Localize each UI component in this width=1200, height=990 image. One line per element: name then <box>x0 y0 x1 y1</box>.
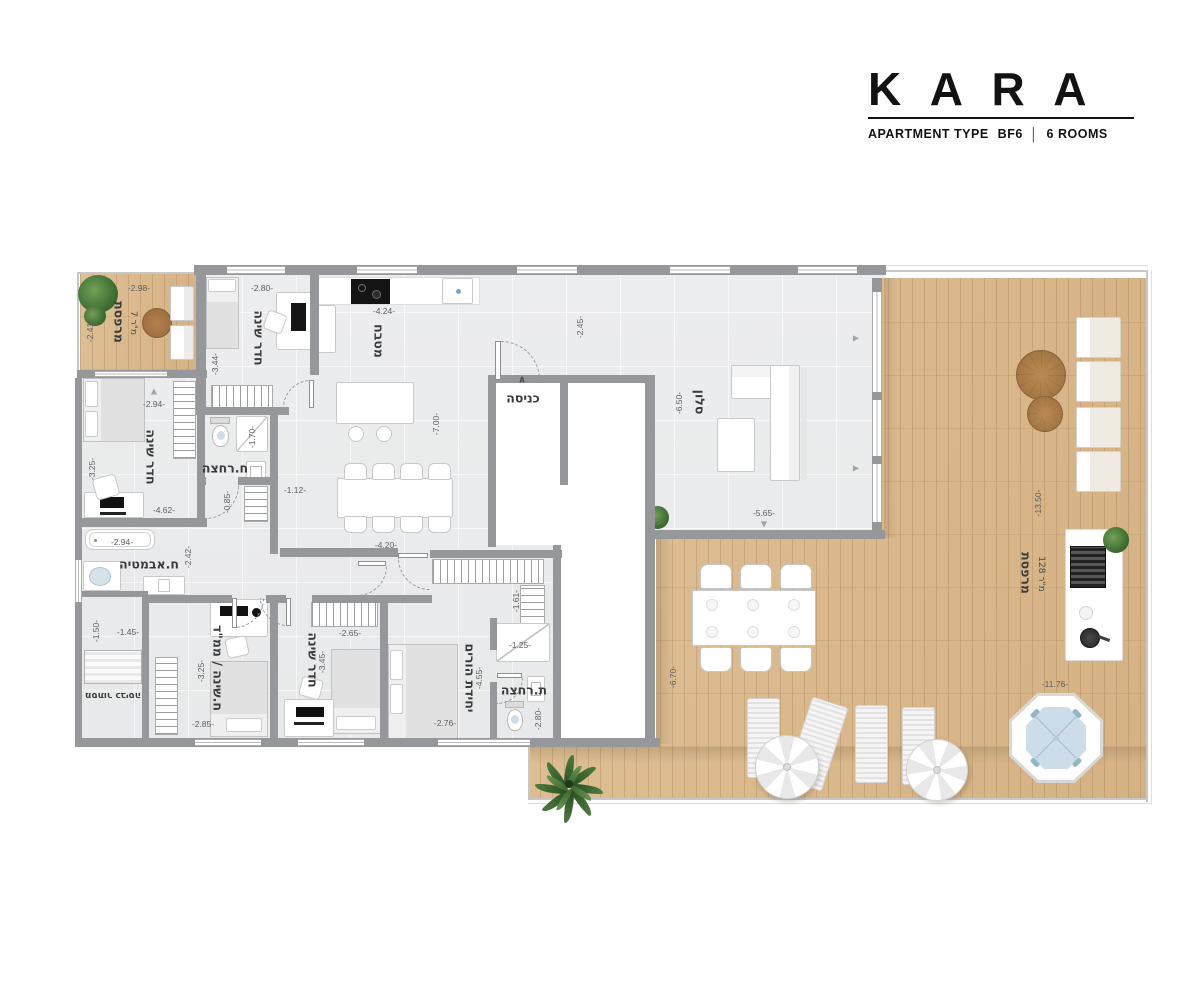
dimension-label: -3.45- <box>317 651 327 673</box>
dimension-label: -1.45- <box>117 627 139 637</box>
dimension-label: -2.41- <box>85 320 95 342</box>
dimension-label: -2.65- <box>339 628 361 638</box>
dimension-label: -2.94- <box>143 399 165 409</box>
dimension-label: -2.42- <box>183 546 193 568</box>
room-label: חדר שינה <box>252 310 267 365</box>
direction-marker-icon: ▶ <box>853 464 859 473</box>
direction-marker-icon: ▲ <box>151 387 157 396</box>
dimension-label: -4.62- <box>153 505 175 515</box>
room-label: 7 מ"ר <box>128 311 138 335</box>
dimension-label: -2.80- <box>533 708 543 730</box>
room-label: מטבח <box>372 324 387 358</box>
dimension-label: -1.12- <box>284 485 306 495</box>
direction-marker-icon: ▶ <box>853 334 859 343</box>
room-label: חדר שינה <box>144 429 159 484</box>
room-label: מרפסת <box>1019 552 1034 594</box>
dimension-label: -6.50- <box>674 392 684 414</box>
dimension-label: -4.20- <box>375 540 397 550</box>
dimension-label: -2.80- <box>251 283 273 293</box>
dimension-label: -3.44- <box>210 353 220 375</box>
dimension-label: -4.24- <box>373 306 395 316</box>
dimension-label: -2.94- <box>111 537 133 547</box>
floor-plan: מרפסת7 מ"רחדר שינהמטבחכניסהסלוןחדר שינהח… <box>0 0 1200 990</box>
room-label: ח.שינה / ממ"ד <box>211 625 226 711</box>
dimension-label: -2.45- <box>575 316 585 338</box>
dimension-label: -1.50- <box>91 620 101 642</box>
dimension-label: -6.70- <box>668 666 678 688</box>
direction-marker-icon: ▼ <box>761 520 767 529</box>
room-label: ח.רחצה <box>202 461 248 476</box>
dimension-label: -3.25- <box>196 660 206 682</box>
dimension-label: -5.65- <box>753 508 775 518</box>
entrance-arrow-icon: ∧ <box>518 375 526 386</box>
dimension-label: -2.85- <box>192 719 214 729</box>
floorplan-page: { "brand": { "name": "KARA", "subtitle":… <box>0 0 1200 990</box>
room-label: 128 מ"ר <box>1036 556 1046 591</box>
dimension-label: -7.00- <box>431 413 441 435</box>
dimension-label: -3.25- <box>87 458 97 480</box>
dimension-label: -2.76- <box>434 718 456 728</box>
dimension-label: -4.55- <box>474 667 484 689</box>
dimension-label: -0.85- <box>222 491 232 513</box>
dimension-label: -1.61- <box>511 590 521 612</box>
labels-layer: מרפסת7 מ"רחדר שינהמטבחכניסהסלוןחדר שינהח… <box>0 0 1200 990</box>
room-label: סלון <box>693 390 708 415</box>
room-label: כניסה <box>506 391 540 406</box>
dimension-label: -1.70- <box>247 426 257 448</box>
room-label: ח.אבמטיה <box>119 557 179 572</box>
room-label: מרפסת <box>112 301 127 343</box>
dimension-label: -13.50- <box>1033 490 1043 517</box>
room-label: ת.רחצה <box>501 683 547 698</box>
dimension-label: -1.25- <box>509 640 531 650</box>
room-label: מסתור כביסה <box>85 690 141 700</box>
dimension-label: -11.76- <box>1042 679 1068 689</box>
dimension-label: -2.98- <box>128 283 150 293</box>
